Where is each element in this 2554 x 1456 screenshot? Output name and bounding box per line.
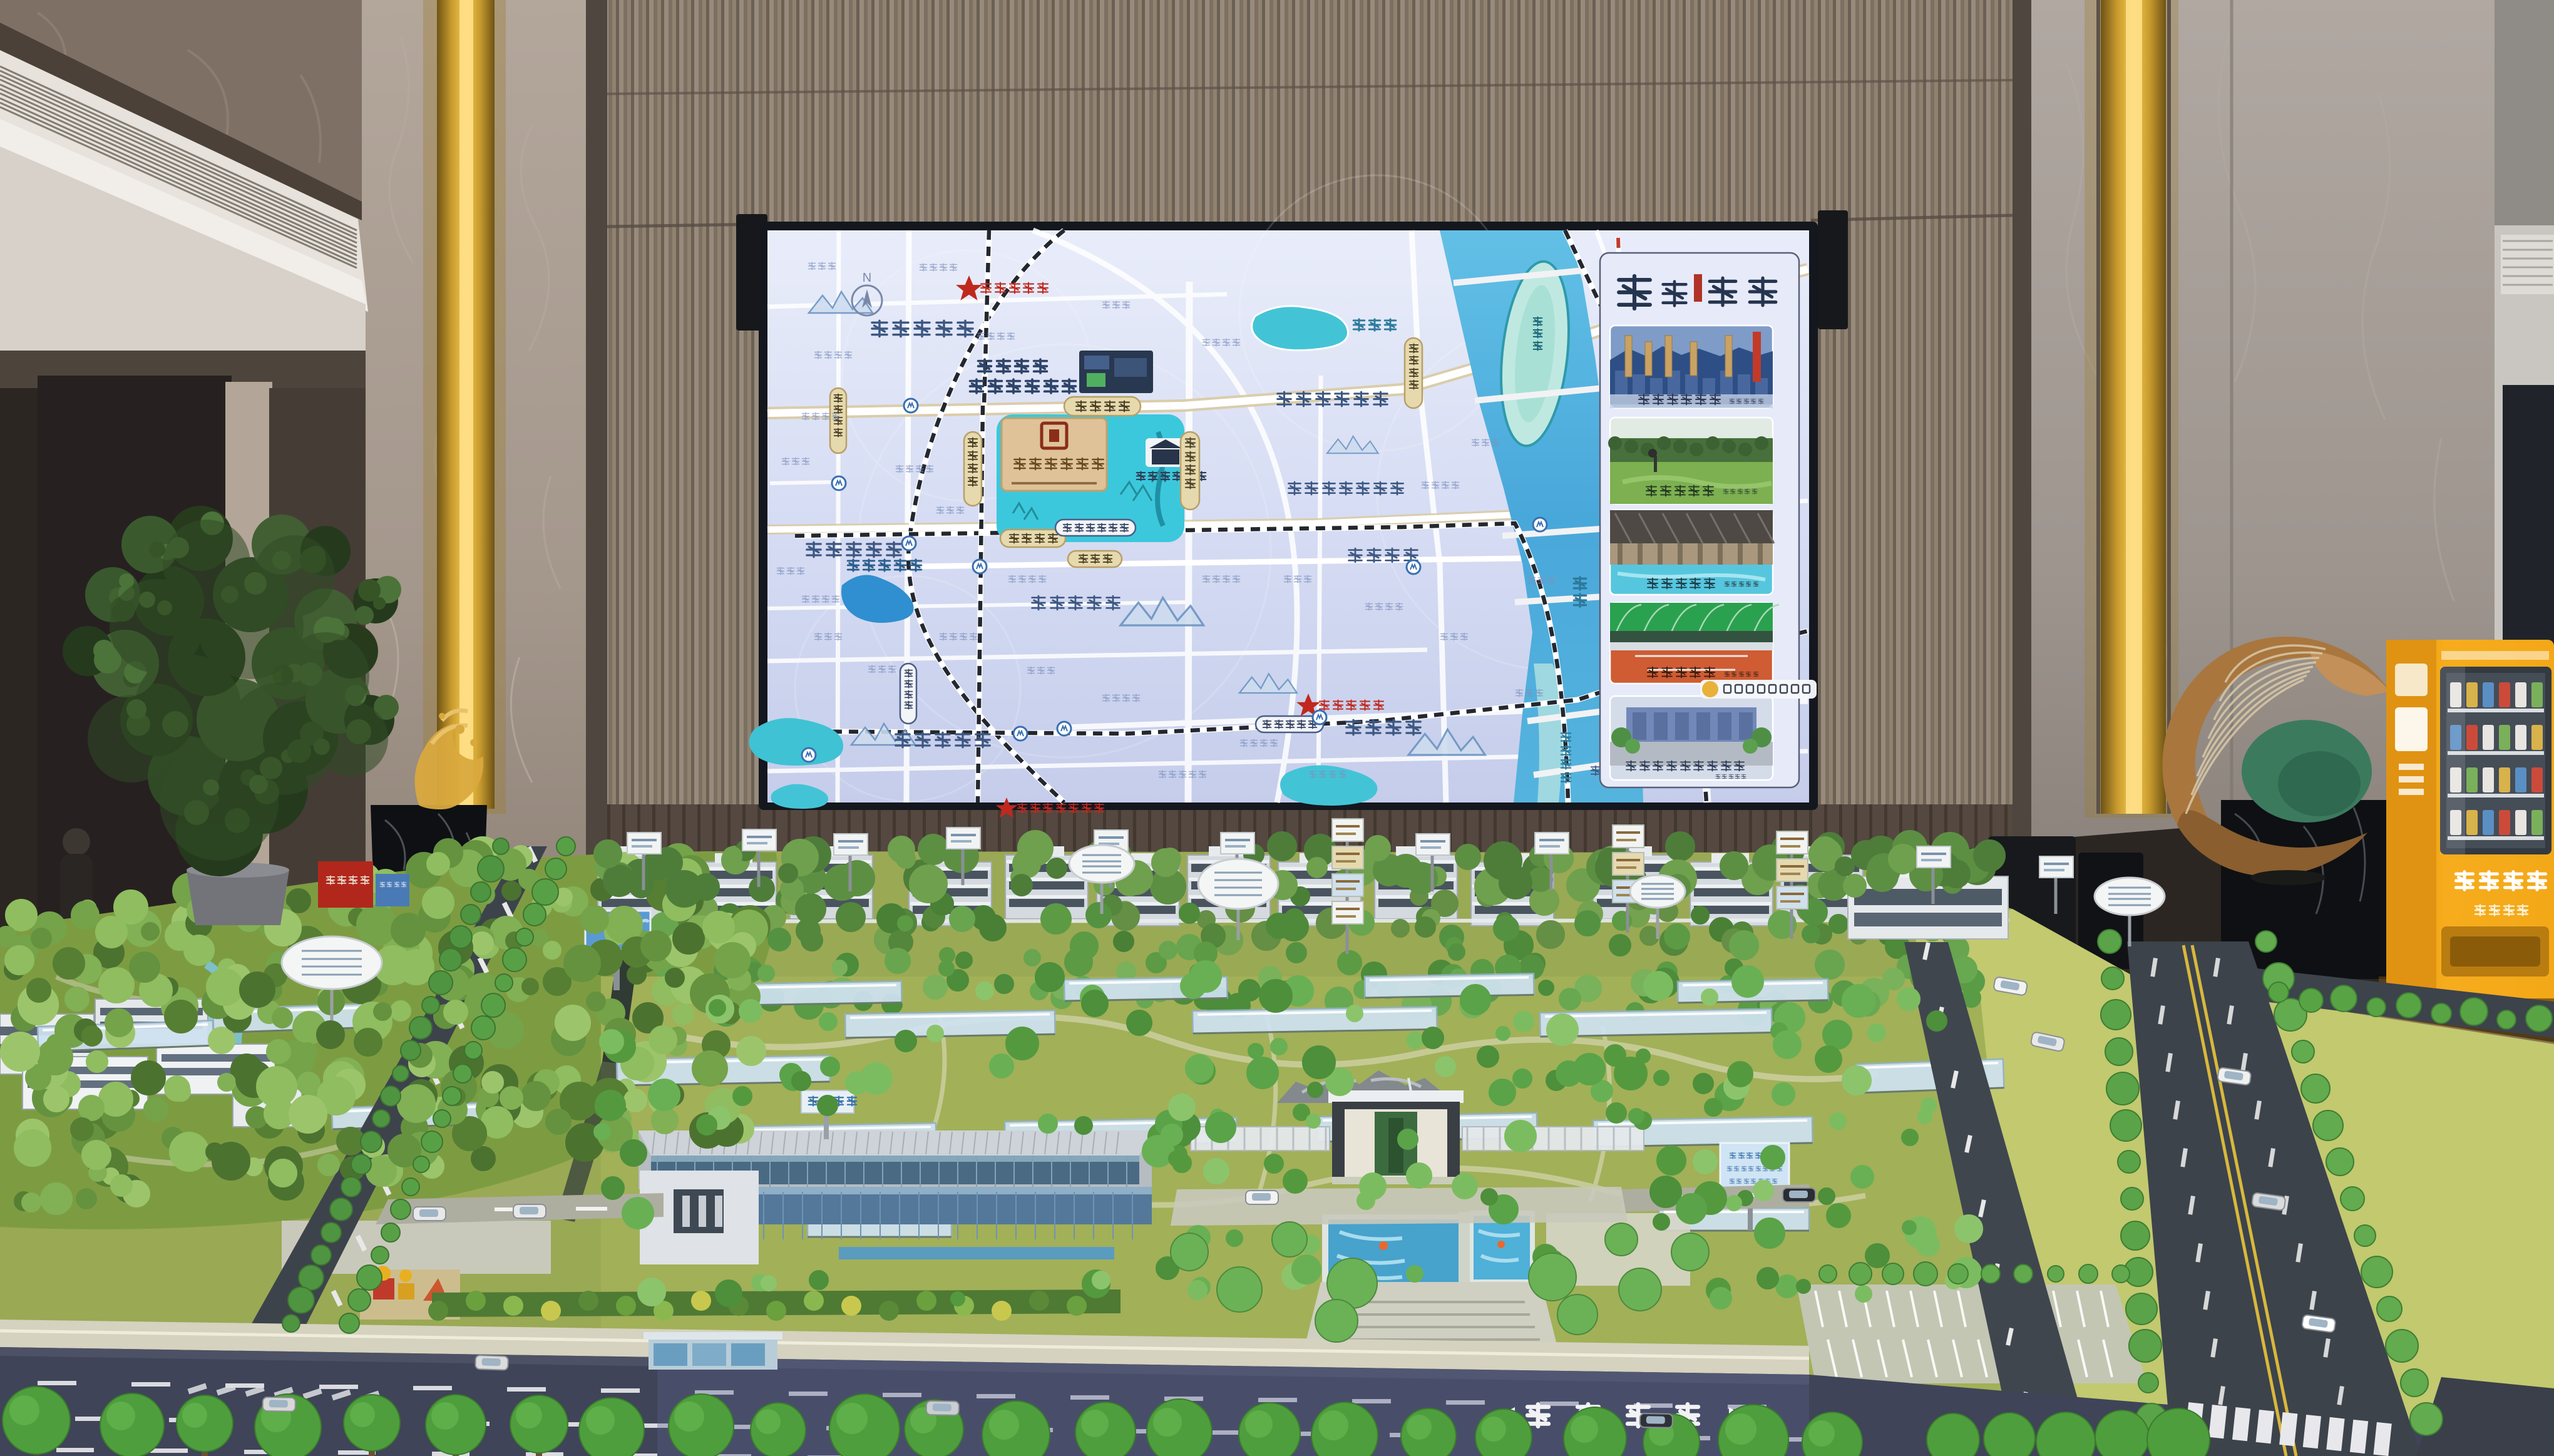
svg-text:N: N (863, 271, 871, 285)
